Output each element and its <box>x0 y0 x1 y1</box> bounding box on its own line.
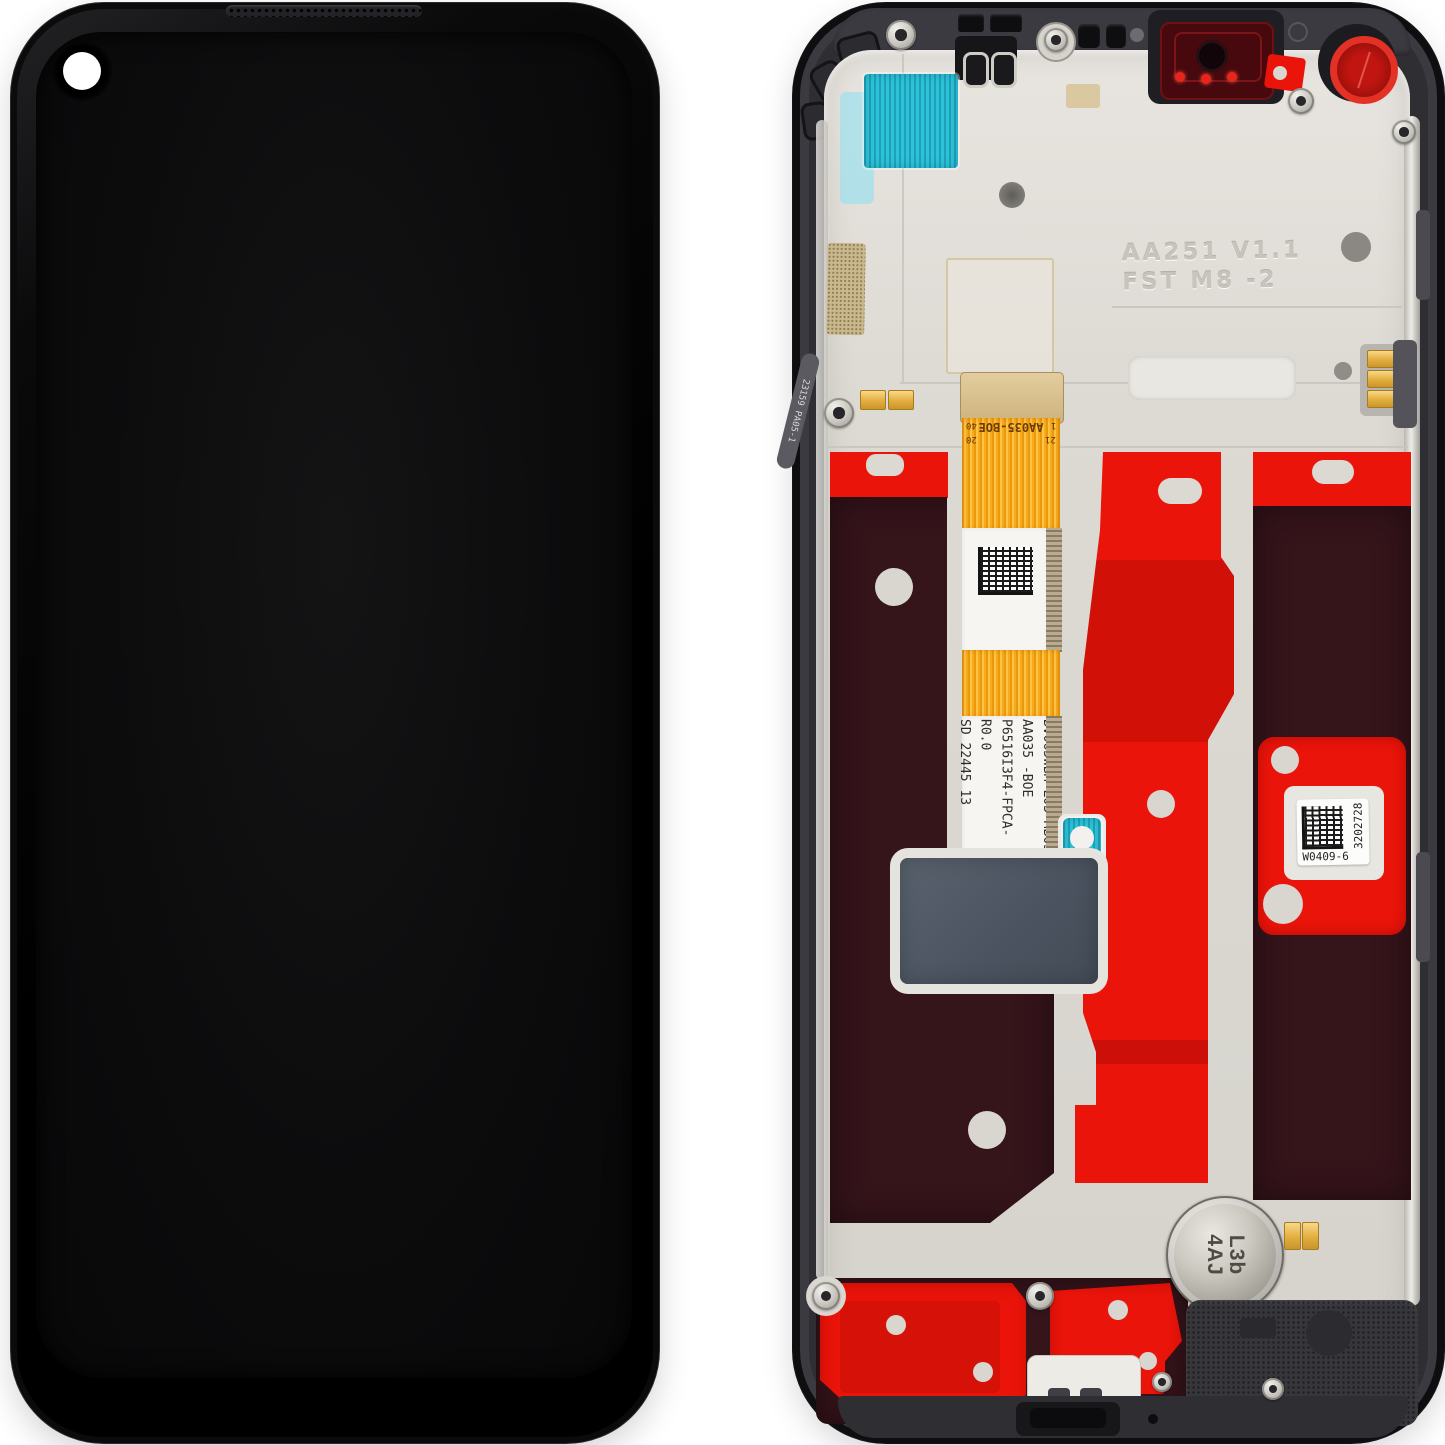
screw <box>1262 1378 1284 1400</box>
screw-hole <box>1296 96 1306 106</box>
pin-number: 20 <box>966 434 977 444</box>
tab-hole <box>1070 826 1094 850</box>
plastic-recess <box>1306 1310 1352 1356</box>
screw-hole <box>1051 35 1060 44</box>
embossed-line2: FST M8 -2 <box>1122 265 1303 297</box>
liner-hole <box>1147 790 1175 818</box>
flex-line-2: AA035 -BOE <box>1015 719 1036 858</box>
gold-contact-pad <box>1367 370 1395 388</box>
screw-hole <box>821 1291 832 1302</box>
screw-hole <box>1158 1378 1166 1386</box>
frame-cutout <box>1106 24 1126 48</box>
gold-contact-pad <box>860 390 886 410</box>
graphite-pad <box>900 858 1098 984</box>
screw-hole <box>1399 127 1408 136</box>
right-rail-flex <box>1416 210 1430 300</box>
plate-seam <box>828 446 1408 448</box>
sticker-hole <box>1273 66 1287 80</box>
screw-hole <box>833 407 844 418</box>
tape-patch <box>1066 84 1100 108</box>
screw <box>1044 28 1068 52</box>
antenna-mesh-sticker <box>826 243 866 336</box>
label-code: W0409-6 <box>1302 850 1349 864</box>
front-phone-screen <box>36 32 632 1378</box>
liner-notch <box>1158 478 1202 504</box>
red-dot <box>1175 72 1185 82</box>
flex-bond-strip <box>1046 528 1062 652</box>
gold-contact-pad <box>1284 1222 1301 1250</box>
main-flex-cable <box>962 650 1060 718</box>
screw <box>1152 1372 1172 1392</box>
serial-number: 3202728 <box>1351 802 1365 849</box>
screw <box>886 20 916 50</box>
pin-number: 40 <box>966 420 977 430</box>
flex-line-3: P6516I3F4-FPCA-R0.0 <box>974 719 1016 858</box>
sensor-post <box>991 52 1017 88</box>
screw <box>824 398 854 428</box>
product-photo-stage: AA251 V1.1 FST M8 -2 23159 PA05-1 32 <box>0 0 1445 1445</box>
motor-line2: 4AJ <box>1203 1234 1225 1276</box>
datamatrix-code <box>1302 806 1344 850</box>
embossed-line1: AA251 V1.1 <box>1122 236 1303 268</box>
screw <box>1026 1282 1054 1310</box>
sensor-post <box>963 52 989 88</box>
charging-port <box>1030 1408 1106 1428</box>
frame-cutout <box>990 14 1022 32</box>
plate-recess <box>1128 356 1296 400</box>
plate-seam <box>1112 306 1402 308</box>
red-dot <box>1227 72 1237 82</box>
red-dot <box>1201 74 1211 84</box>
liner-hole <box>973 1362 993 1382</box>
front-camera-hole <box>1196 40 1228 72</box>
liner-hole <box>875 568 913 606</box>
mic-port <box>1148 1414 1158 1424</box>
flex-line-4: SD 22445 13 <box>953 719 974 858</box>
screw-hole <box>895 29 906 40</box>
right-rail-flex <box>1416 852 1430 962</box>
gold-contact-pad <box>1367 350 1395 368</box>
red-camera-ring <box>1330 36 1398 104</box>
gold-contact-pad <box>1302 1222 1319 1250</box>
embossed-marking: AA251 V1.1 FST M8 -2 <box>1122 236 1303 297</box>
flex-label-text-section: BV065WBM-L03-MB03 AA035 -BOE P6516I3F4-F… <box>962 716 1048 858</box>
frame-bottom-band <box>838 1396 1408 1438</box>
frame-cutout <box>1078 24 1100 48</box>
liner-hole <box>1139 1352 1157 1370</box>
motor-line1: L3b <box>1225 1234 1247 1276</box>
qr-serial-label: 3202728 W0409-6 <box>1296 798 1369 865</box>
screw <box>1392 120 1416 144</box>
liner-hole <box>1263 884 1303 924</box>
liner-notch <box>1312 460 1354 484</box>
camera-sticker-dot <box>63 52 101 90</box>
pin-number: 1 <box>1051 420 1056 430</box>
pin-number: 21 <box>1045 434 1056 444</box>
liner-notch <box>866 454 904 476</box>
adhesive-outline <box>946 258 1054 374</box>
flex-part-numbers: BV065WBM-L03-MB03 AA035 -BOE P6516I3F4-F… <box>953 716 1057 858</box>
plastic-slot <box>1240 1318 1276 1338</box>
sensor-hole <box>1341 232 1371 262</box>
screw-hole <box>1269 1385 1277 1393</box>
screw <box>1288 88 1314 114</box>
mic-hole <box>999 182 1025 208</box>
liner-hole <box>1271 746 1299 774</box>
earpiece-grille <box>226 5 422 17</box>
molded-logo-mark <box>1288 22 1308 42</box>
edge-bracket <box>1393 340 1417 428</box>
liner-hole <box>1108 1300 1128 1320</box>
sensor-hole <box>1334 362 1352 380</box>
screw <box>812 1282 840 1310</box>
datamatrix-code <box>978 547 1033 595</box>
ring-reflection <box>1357 52 1371 89</box>
cyan-adhesive-sticker <box>864 74 958 168</box>
flex-stiffener <box>960 372 1064 424</box>
motor-marking: L3b 4AJ <box>1203 1234 1247 1276</box>
main-flex-cable: AA035-BOE 40 20 1 21 <box>962 418 1060 530</box>
vibration-motor: L3b 4AJ <box>1166 1196 1284 1314</box>
gold-contact-pad <box>1367 390 1395 408</box>
flex-label-qr-section <box>962 528 1048 652</box>
liner-hole <box>886 1315 906 1335</box>
liner-hole <box>968 1111 1006 1149</box>
frame-cutout <box>958 14 984 32</box>
screw-hole <box>1035 1291 1046 1302</box>
gold-contact-pad <box>888 390 914 410</box>
frame-dot <box>1130 28 1144 42</box>
